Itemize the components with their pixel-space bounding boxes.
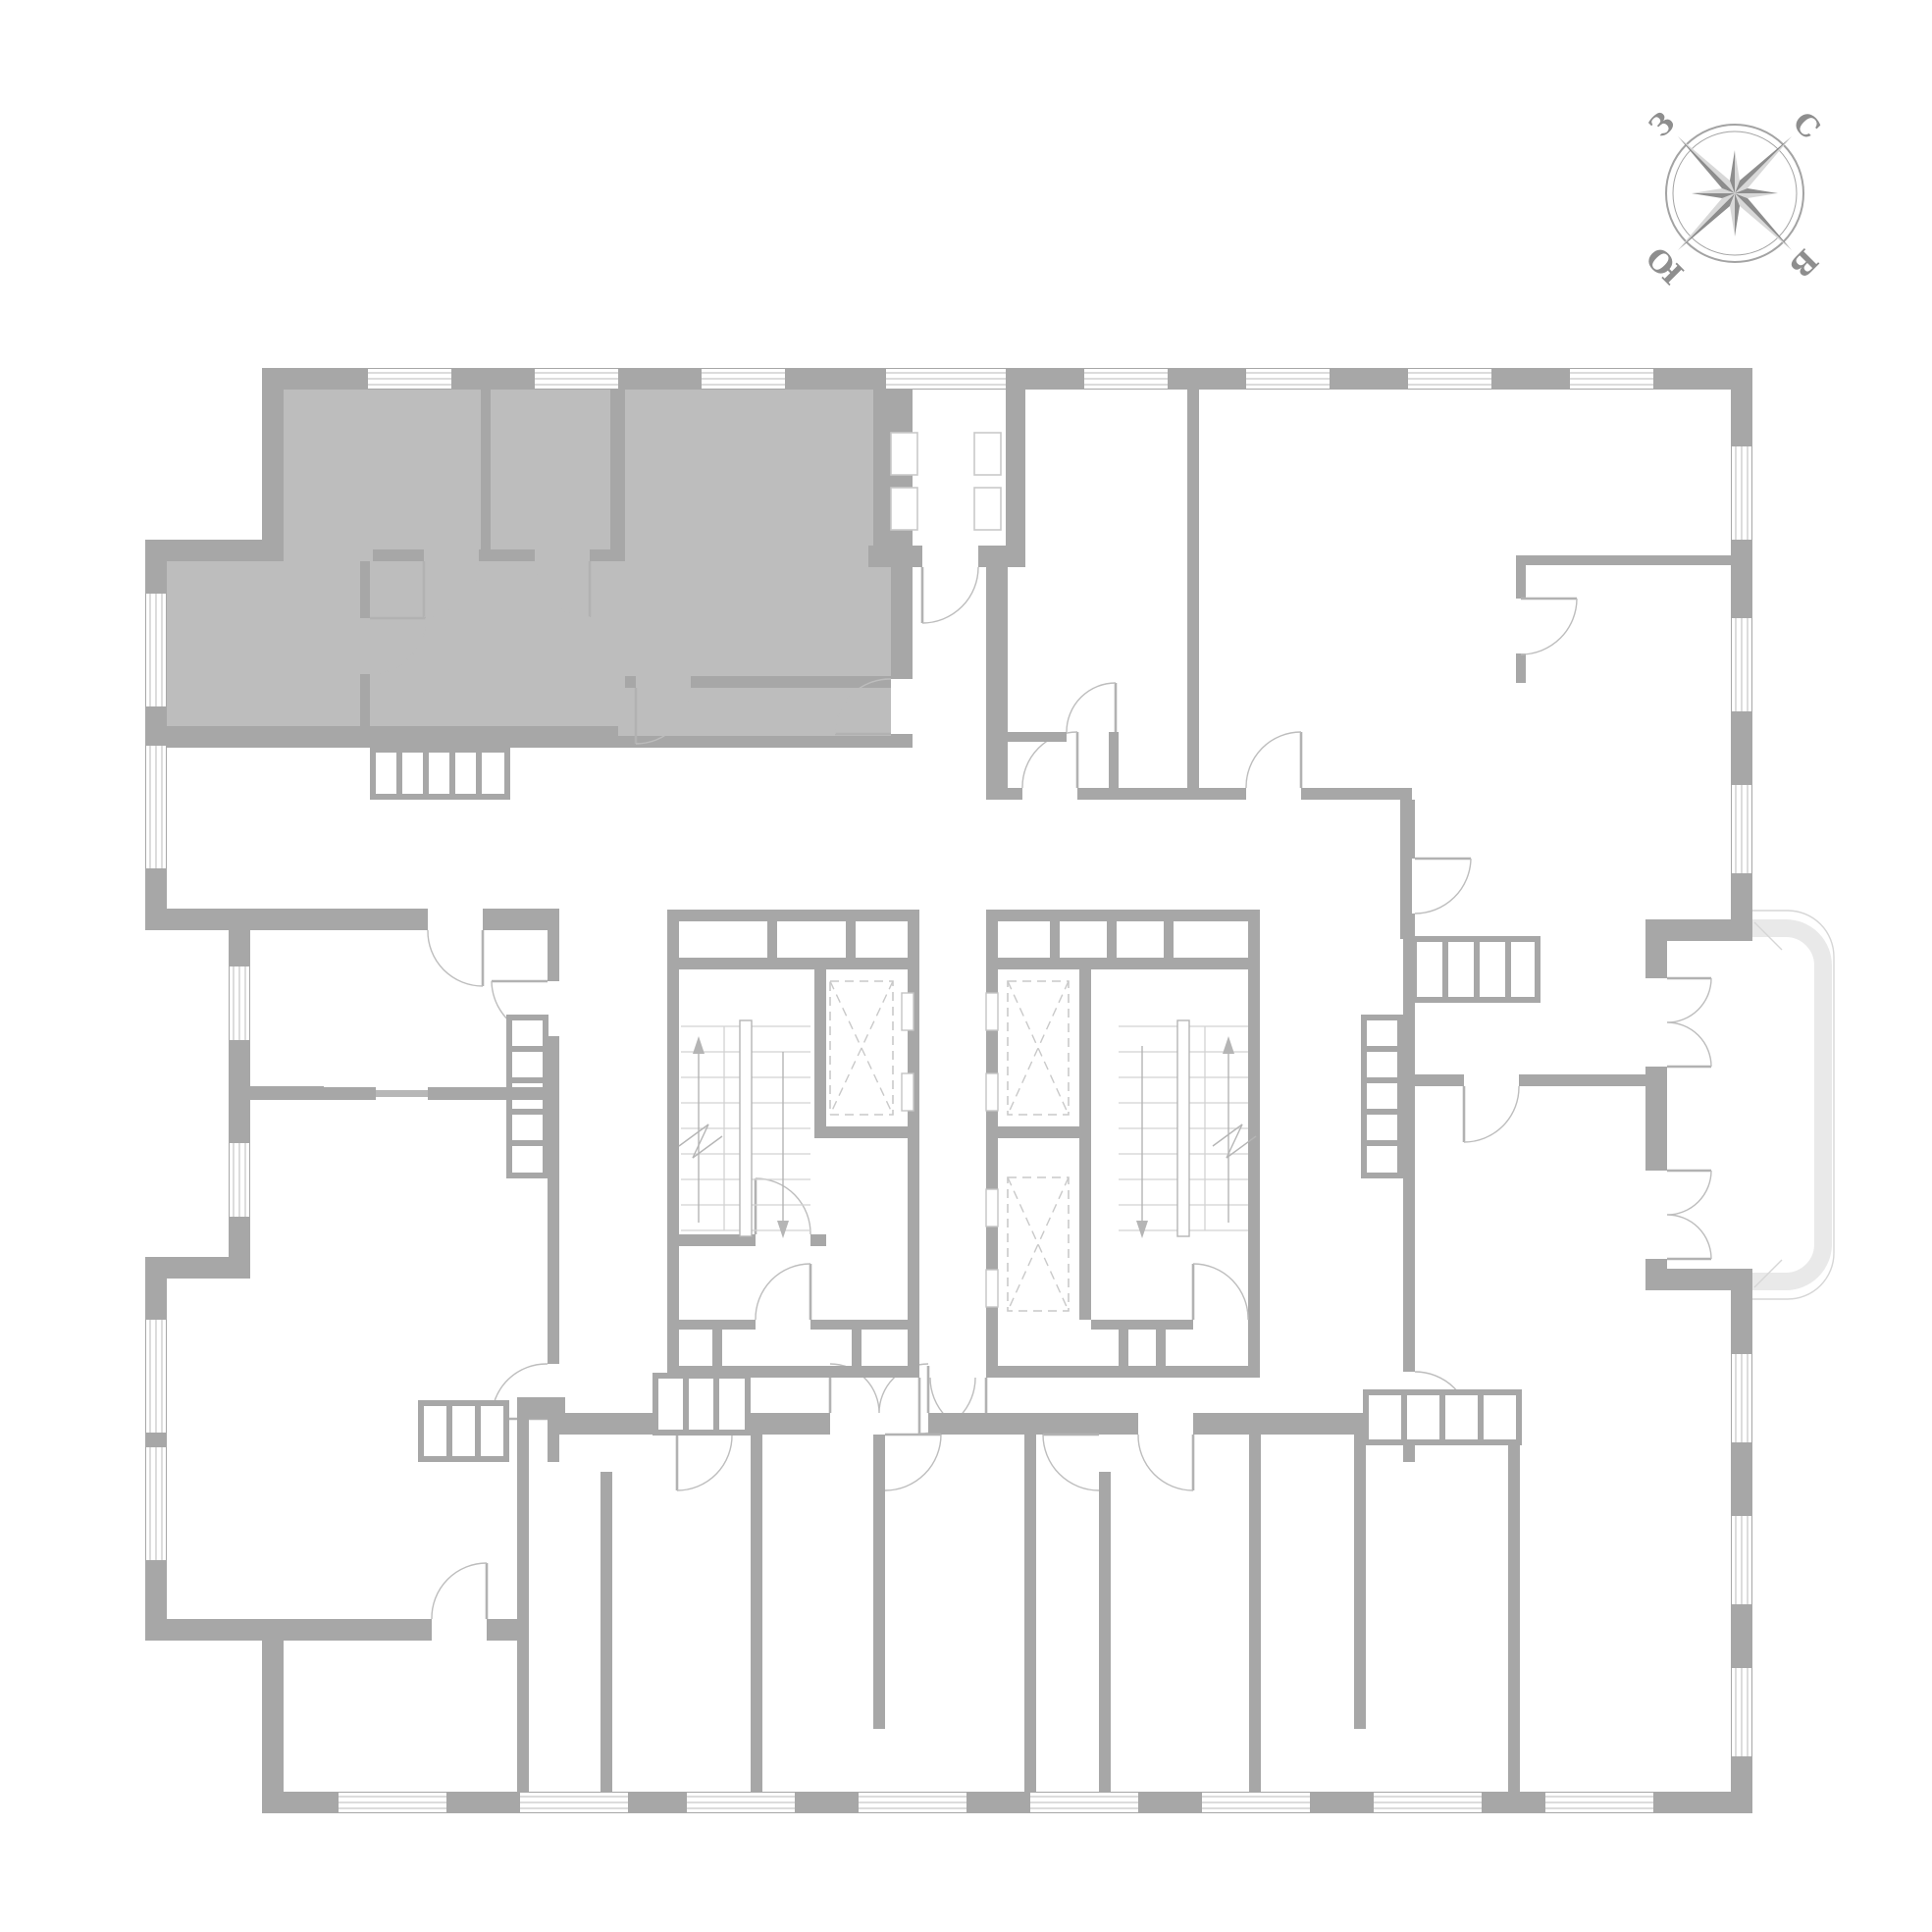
closet-row <box>1366 1392 1519 1442</box>
wall-segment <box>1199 788 1246 800</box>
wall-recess-top <box>1645 919 1752 941</box>
compass-label-west: З <box>1643 105 1682 144</box>
wall-segment <box>428 1087 559 1100</box>
compass-rose: С В Ю З <box>1640 105 1826 289</box>
wall-segment <box>986 958 1260 969</box>
stair-flight <box>1119 1020 1256 1238</box>
wall-segment <box>373 549 424 561</box>
loggia-column <box>974 433 1001 475</box>
door <box>677 1435 732 1490</box>
wall-segment <box>1354 1435 1366 1729</box>
window <box>1732 1516 1751 1604</box>
wall-segment <box>284 1619 432 1641</box>
wall-segment <box>1187 390 1199 800</box>
vent-divider <box>1050 915 1060 960</box>
door <box>1043 1435 1099 1490</box>
wall-segment <box>868 546 922 567</box>
wall-segment <box>1099 1472 1111 1792</box>
wall-recess-bottom <box>1645 1269 1752 1290</box>
door <box>428 930 483 986</box>
wall-segment <box>618 736 891 748</box>
wall-bottom <box>262 1792 1752 1813</box>
apartment-top-b <box>1008 390 1199 800</box>
compass-needles <box>1678 136 1792 250</box>
wall-segment <box>167 726 618 748</box>
wall-segment <box>487 1619 517 1641</box>
vent-divider <box>712 1330 722 1366</box>
wall-segment <box>667 1320 756 1330</box>
window <box>520 1793 628 1812</box>
stair-flight <box>679 1020 810 1238</box>
wall-segment <box>239 909 428 930</box>
wall-segment <box>548 1419 559 1462</box>
closet-row <box>373 750 507 797</box>
window <box>1084 369 1168 389</box>
window <box>146 1320 166 1433</box>
wall-segment <box>1403 914 1415 1372</box>
window <box>535 369 618 389</box>
door <box>922 567 978 623</box>
wall-segment <box>1516 653 1526 683</box>
window <box>1030 1793 1138 1812</box>
wall-segment <box>691 676 891 688</box>
balcony-right <box>1646 911 1834 1299</box>
wall-recess-seg3 <box>1645 1259 1667 1269</box>
closet-row <box>1414 939 1538 1000</box>
wall-segment <box>978 546 1025 567</box>
wall-segment <box>360 561 370 618</box>
wall-segment <box>360 674 370 726</box>
door <box>756 1264 810 1320</box>
wall-recess-seg1 <box>1645 941 1667 978</box>
wall-left-step2 <box>145 909 239 930</box>
wall-segment <box>986 1366 1260 1378</box>
window <box>859 1793 966 1812</box>
pocket-door <box>376 1090 428 1097</box>
wall-segment <box>810 1320 919 1330</box>
door <box>1138 1435 1193 1490</box>
wall-segment <box>625 676 636 688</box>
wall-segment <box>891 734 913 748</box>
wall-segment <box>986 910 1260 921</box>
window <box>230 966 249 1040</box>
apartment-mid-left <box>229 909 559 1641</box>
compass-label-east: В <box>1782 241 1824 284</box>
wall-segment <box>1403 800 1415 859</box>
wall-segment <box>481 390 491 549</box>
stair-core-left <box>667 910 919 1378</box>
apartments-bottom <box>421 1376 1520 1792</box>
wall-segment <box>810 1234 826 1246</box>
window <box>146 1447 166 1560</box>
vent-divider <box>1156 1330 1166 1366</box>
wall-segment <box>667 910 679 1378</box>
wall-segment <box>751 1435 762 1792</box>
door <box>1521 599 1577 654</box>
closet-row <box>655 1376 748 1433</box>
window <box>339 1793 446 1812</box>
door <box>1415 859 1471 914</box>
window <box>702 369 785 389</box>
window <box>1246 369 1330 389</box>
wall-top <box>262 368 1752 390</box>
wall-segment <box>1508 1435 1520 1792</box>
wall-segment <box>600 1472 612 1792</box>
window <box>1732 785 1751 873</box>
wall-segment <box>814 969 826 1126</box>
floor-plan-page: С В Ю З <box>0 0 1932 1932</box>
window <box>146 594 166 706</box>
window <box>1732 1668 1751 1756</box>
window <box>1202 1793 1310 1812</box>
window <box>146 746 166 868</box>
elevator-shaft <box>986 981 1069 1115</box>
wall-segment <box>479 549 535 561</box>
wall-segment <box>590 549 625 561</box>
stair-break-line <box>679 1124 722 1158</box>
wall-segment <box>814 1126 919 1138</box>
vent-divider <box>1164 915 1174 960</box>
loggia-glazing <box>886 369 1006 389</box>
door <box>1193 1264 1248 1320</box>
floor-plan-canvas: С В Ю З <box>0 0 1932 1932</box>
wall-segment <box>548 1036 559 1364</box>
wall-segment <box>873 1435 885 1729</box>
door <box>1246 732 1301 788</box>
wall-segment <box>667 910 919 921</box>
wall-segment <box>1091 1320 1193 1330</box>
wall-segment <box>667 958 919 969</box>
door <box>885 1435 941 1490</box>
compass-label-south: Ю <box>1640 239 1691 290</box>
wall-left-col1 <box>262 368 284 561</box>
stair-core-right <box>986 910 1260 1378</box>
wall-segment <box>610 390 625 549</box>
vent-divider <box>846 915 856 960</box>
elevator-shaft <box>830 981 914 1115</box>
wall-segment <box>548 930 559 981</box>
window <box>1545 1793 1653 1812</box>
vent-divider <box>1119 1330 1128 1366</box>
loggia-column <box>974 488 1001 530</box>
vent-divider <box>1107 915 1117 960</box>
window <box>1732 446 1751 540</box>
balcony-corner-hatch <box>1754 922 1782 1287</box>
wall-segment <box>1008 788 1022 800</box>
wall-segment <box>928 1413 1138 1435</box>
wall-segment <box>1516 555 1731 565</box>
wall-segment <box>1249 1435 1261 1792</box>
wall-segment <box>908 910 919 1378</box>
loggia-column <box>891 433 917 475</box>
wall-segment <box>1008 732 1067 742</box>
wall-recess-seg2 <box>1645 1067 1667 1171</box>
wall-segment <box>483 909 559 930</box>
wall-segment <box>998 1126 1091 1138</box>
wall-segment <box>1077 788 1199 800</box>
wall-segment <box>986 567 1008 800</box>
door <box>432 1563 487 1619</box>
window <box>1374 1793 1482 1812</box>
loggia-column <box>891 488 917 530</box>
wall-segment <box>1079 969 1091 1320</box>
wall-segment <box>873 390 891 567</box>
window <box>687 1793 795 1812</box>
wall-segment <box>1248 1320 1260 1330</box>
wall-segment <box>517 1397 529 1792</box>
door <box>1464 1086 1519 1142</box>
vent-divider <box>852 1330 862 1366</box>
french-door <box>1646 978 1711 1067</box>
window <box>1732 1354 1751 1442</box>
door <box>1067 683 1116 732</box>
wall-segment <box>229 1087 376 1100</box>
wall-segment <box>1415 1074 1464 1086</box>
wall-segment <box>1516 565 1526 599</box>
french-door <box>1646 1171 1711 1259</box>
vent-divider <box>767 915 777 960</box>
wall-segment <box>1109 732 1119 798</box>
compass-label-north: С <box>1786 106 1827 147</box>
wall-left-col3 <box>262 1619 284 1813</box>
window <box>368 369 451 389</box>
window <box>230 1143 249 1217</box>
window <box>1570 369 1653 389</box>
closet-row <box>421 1403 506 1459</box>
wall-segment <box>1024 1435 1036 1792</box>
wall-segment <box>1519 1074 1645 1086</box>
wall-segment <box>1248 910 1260 1378</box>
shaft-ladder <box>1364 1018 1400 1175</box>
elevator-shaft <box>986 1177 1069 1311</box>
window <box>1408 369 1491 389</box>
wall-segment <box>1301 788 1412 800</box>
window <box>1732 618 1751 711</box>
balcony-slab <box>1752 928 1823 1281</box>
wall-segment <box>1006 390 1025 567</box>
